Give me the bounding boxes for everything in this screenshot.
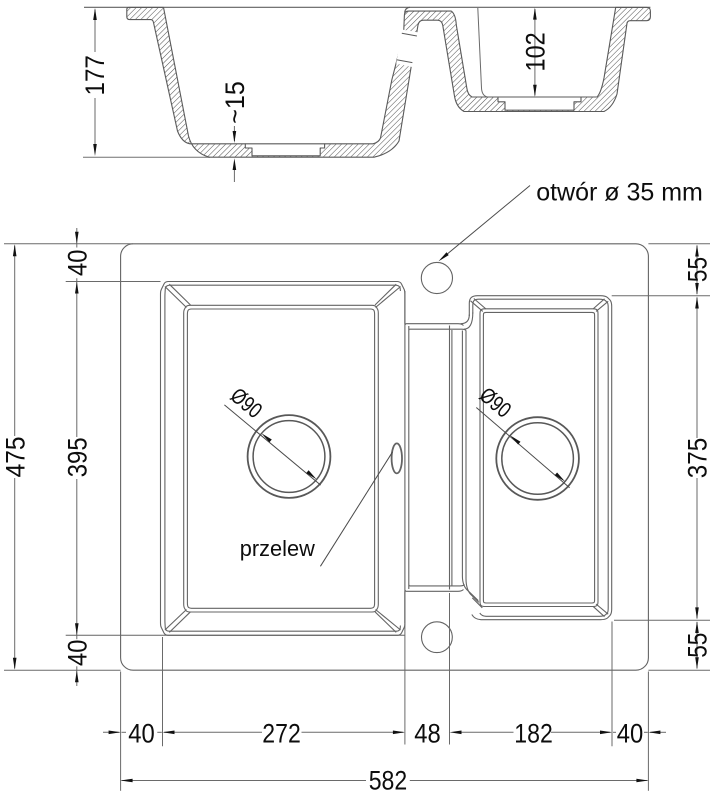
svg-text:55: 55 xyxy=(683,257,713,282)
svg-text:55: 55 xyxy=(683,633,713,658)
svg-text:272: 272 xyxy=(262,718,301,748)
svg-text:375: 375 xyxy=(683,438,713,479)
svg-text:40: 40 xyxy=(63,640,93,667)
svg-text:182: 182 xyxy=(514,718,553,748)
svg-text:40: 40 xyxy=(128,718,155,748)
svg-text:102: 102 xyxy=(521,32,551,71)
svg-text:40: 40 xyxy=(63,250,93,277)
svg-text:~15: ~15 xyxy=(220,81,250,124)
svg-text:395: 395 xyxy=(63,437,93,477)
svg-text:40: 40 xyxy=(617,718,644,748)
svg-text:przelew: przelew xyxy=(240,536,315,561)
svg-text:otwór ø 35 mm: otwór ø 35 mm xyxy=(536,179,703,207)
svg-text:177: 177 xyxy=(80,55,110,95)
svg-text:475: 475 xyxy=(0,436,30,477)
svg-text:48: 48 xyxy=(414,718,441,748)
svg-text:582: 582 xyxy=(369,765,408,795)
